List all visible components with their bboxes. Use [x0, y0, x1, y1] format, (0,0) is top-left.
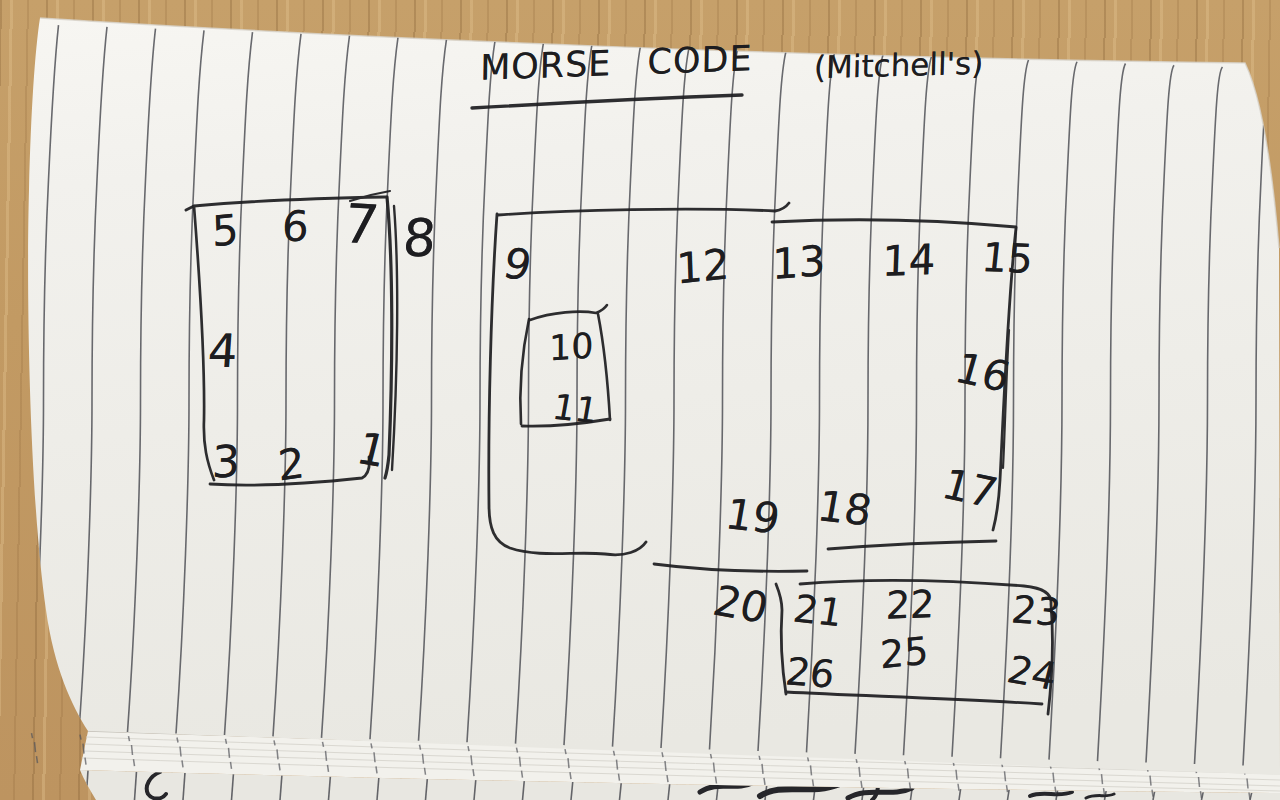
- ruled-line-dash: [520, 757, 521, 767]
- ruled-line-dash: [425, 768, 426, 775]
- ruled-line-dash: [420, 745, 421, 750]
- ruled-line-dash: [665, 761, 666, 771]
- ruled-line-dash: [37, 756, 38, 763]
- ruled-line-dash: [861, 781, 862, 788]
- ruled-line-dash: [956, 770, 957, 780]
- page-title: MORSE CODE: [480, 41, 753, 86]
- ruled-line-dash: [328, 765, 329, 772]
- ruled-line-dash: [180, 746, 181, 756]
- ruled-line-dash: [32, 733, 33, 738]
- diagram-number-13: 13: [772, 240, 825, 286]
- diagram-number-16: 16: [951, 347, 1015, 399]
- ruled-line-dash: [374, 752, 375, 762]
- diagram-number-12: 12: [675, 243, 730, 291]
- ruled-line-dash: [1150, 776, 1151, 786]
- ruled-line-dash: [182, 760, 183, 767]
- ruled-line-dash: [229, 748, 230, 758]
- ruled-line-dash: [1247, 778, 1248, 788]
- ruled-line-dash: [762, 764, 763, 774]
- ruled-line-dash: [1249, 792, 1250, 799]
- ruled-line-dash: [614, 751, 615, 756]
- ruled-line-dash: [859, 767, 860, 777]
- diagram-number-5: 5: [211, 209, 239, 254]
- ruled-line-dash: [1007, 785, 1008, 792]
- ruled-line-dash: [619, 774, 620, 781]
- diagram-number-14: 14: [881, 239, 936, 283]
- diagram-number-23: 23: [1009, 590, 1063, 631]
- diagram-number-25: 25: [879, 631, 928, 674]
- ruled-line-dash: [279, 763, 280, 770]
- lower-page-ruled-line: [38, 770, 40, 800]
- ruled-line-dash: [910, 782, 911, 789]
- ruled-line-dash: [129, 736, 130, 741]
- ruled-line-dash: [471, 755, 472, 765]
- ruled-line-dash: [716, 776, 717, 783]
- ruled-line-dash: [958, 784, 959, 791]
- diagram-number-7: 7: [341, 197, 382, 253]
- diagram-number-11: 11: [550, 390, 600, 429]
- diagram-number-26: 26: [783, 652, 837, 693]
- ruled-line-dash: [568, 758, 569, 768]
- ruled-line-dash: [811, 765, 812, 775]
- ruled-line-dash: [226, 739, 227, 744]
- diagram-number-22: 22: [885, 585, 935, 625]
- ruled-line-dash: [274, 740, 275, 745]
- ruled-line-dash: [468, 746, 469, 751]
- diagram-number-4: 4: [206, 328, 238, 374]
- ruled-line-dash: [1152, 790, 1153, 797]
- ruled-line-dash: [1005, 771, 1006, 781]
- ruled-line-dash: [177, 737, 178, 742]
- ruled-line-dash: [714, 762, 715, 772]
- ruled-line-dash: [1102, 774, 1103, 784]
- diagram-number-17: 17: [938, 463, 1002, 515]
- diagram-number-2: 2: [277, 442, 306, 488]
- diagram-number-20: 20: [709, 580, 772, 630]
- ruled-line-dash: [908, 768, 909, 778]
- notebook-photo-scene: MORSE CODE (Mitchell's) 5678432191213141…: [0, 0, 1280, 800]
- ruled-line-dash: [711, 753, 712, 758]
- ruled-line-dash: [1199, 777, 1200, 787]
- diagram-number-8: 8: [401, 212, 438, 264]
- ruled-line-dash: [132, 745, 133, 755]
- ruled-line-dash: [473, 769, 474, 776]
- ruled-line-dash: [617, 760, 618, 770]
- ruled-line-dash: [35, 742, 36, 752]
- ruled-line-dash: [1053, 773, 1054, 783]
- ruled-line-dash: [1201, 791, 1202, 798]
- ruled-line-dash: [764, 778, 765, 785]
- ruled-line-dash: [83, 744, 84, 754]
- diagram-number-10: 10: [549, 328, 593, 366]
- diagram-number-19: 19: [722, 493, 782, 540]
- diagram-number-15: 15: [980, 237, 1035, 279]
- ruled-line-dash: [667, 775, 668, 782]
- ruled-line-dash: [423, 754, 424, 764]
- ruled-line-dash: [277, 749, 278, 759]
- ruled-line-dash: [134, 759, 135, 766]
- ruled-line-dash: [323, 742, 324, 747]
- ruled-line-dash: [376, 766, 377, 773]
- ruled-line-dash: [517, 748, 518, 753]
- ruled-line-dash: [371, 743, 372, 748]
- ruled-line-dash: [570, 772, 571, 779]
- diagram-number-3: 3: [211, 439, 241, 484]
- diagram-number-24: 24: [1004, 650, 1061, 695]
- diagram-number-18: 18: [814, 485, 874, 532]
- page-title-annotation: (Mitchell's): [814, 48, 984, 83]
- ruled-line-dash: [565, 749, 566, 754]
- diagram-number-6: 6: [281, 205, 309, 248]
- ruled-line-dash: [1055, 787, 1056, 794]
- ruled-line-dash: [326, 751, 327, 761]
- ruled-line-dash: [522, 771, 523, 778]
- ruled-line-dash: [80, 735, 81, 740]
- top-page: [28, 18, 1280, 775]
- ruled-line-dash: [813, 779, 814, 786]
- notebook-page-graphic: [0, 0, 1280, 800]
- ruled-line-dash: [85, 758, 86, 765]
- ruled-line-dash: [231, 762, 232, 769]
- ruled-line-dash: [662, 752, 663, 757]
- ruled-line-dash: [1104, 788, 1105, 795]
- diagram-number-21: 21: [791, 590, 846, 633]
